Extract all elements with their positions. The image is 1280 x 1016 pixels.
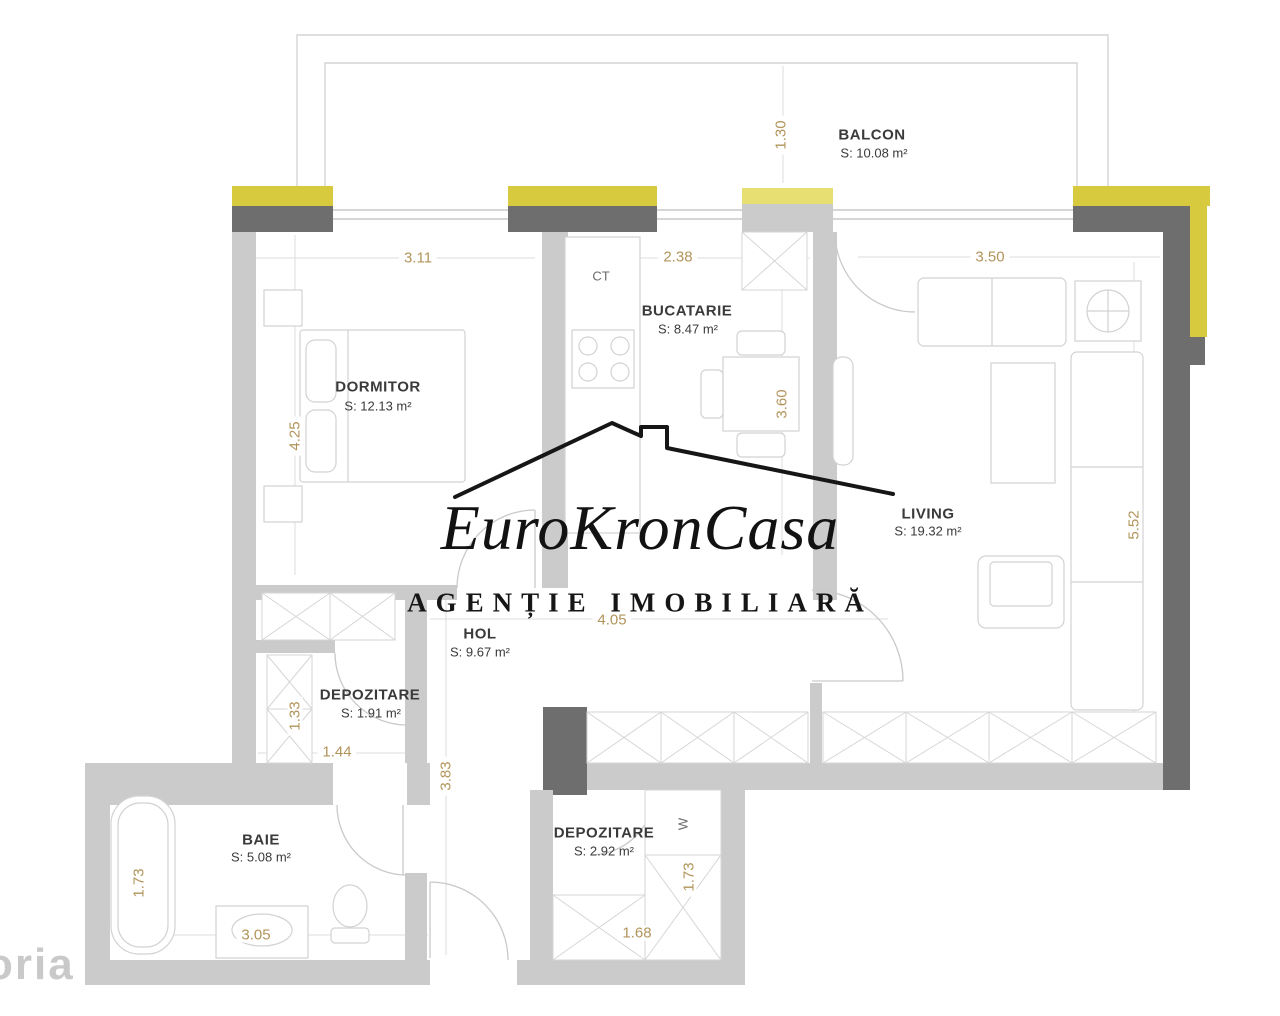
dim-bucatarie-h: 3.60 [775,384,790,423]
brand-script-text: EuroKronCasa [441,491,839,565]
dim-dep-mare-w: 1.68 [617,926,656,941]
room-area-balcon: S: 10.08 m² [840,147,907,160]
room-area-bucatarie: S: 8.47 m² [658,323,718,336]
armchair [978,556,1064,628]
sofa-top [918,278,1066,346]
room-label-depozitare-mic: DEPOZITARE [320,688,421,703]
dim-hol-h: 3.83 [439,756,454,795]
floorplan-canvas: BALCON S: 10.08 m² DORMITOR S: 12.13 m² … [0,0,1280,1016]
room-label-living: LIVING [901,507,954,522]
room-area-baie: S: 5.08 m² [231,851,291,864]
room-label-hol: HOL [463,627,496,642]
corner-watermark: oria [0,940,75,990]
room-area-dormitor: S: 12.13 m² [344,400,411,413]
dim-balcon-depth: 1.30 [774,115,789,154]
dim-living-w: 3.50 [970,250,1009,265]
dim-baie-w: 3.05 [236,928,275,943]
dim-baie-h: 1.73 [132,863,147,902]
room-label-balcon: BALCON [838,128,905,143]
toilet [331,885,369,943]
boiler-tag: CT [589,270,612,283]
room-area-living: S: 19.32 m² [894,525,961,538]
dim-dormitor-h: 4.25 [288,416,303,455]
room-label-dormitor: DORMITOR [335,380,420,395]
room-label-depozitare-mare: DEPOZITARE [554,826,655,841]
dim-bucatarie-w: 2.38 [658,250,697,265]
side-table-plant [1075,281,1141,341]
coffee-table [991,363,1055,483]
brand-tagline: AGENȚIE IMOBILIARĂ [407,588,873,619]
room-area-hol: S: 9.67 m² [450,646,510,659]
dim-dormitor-w: 3.11 [399,251,437,266]
room-label-baie: BAIE [242,833,280,848]
radiator [833,357,853,465]
dim-dep-mic-h: 1.33 [288,696,303,735]
nightstand [264,290,302,326]
dim-living-h: 5.52 [1127,505,1142,544]
dim-dep-mare-h: 1.73 [682,857,697,896]
windows [333,210,1073,219]
room-area-depozitare-mic: S: 1.91 m² [341,707,401,720]
nightstand [264,486,302,522]
balcony-outline [297,35,1108,188]
dim-dep-mic-w: 1.44 [317,745,356,760]
room-area-depozitare-mare: S: 2.92 m² [574,845,634,858]
washer-tag: W [677,815,690,833]
room-label-bucatarie: BUCATARIE [642,304,733,319]
